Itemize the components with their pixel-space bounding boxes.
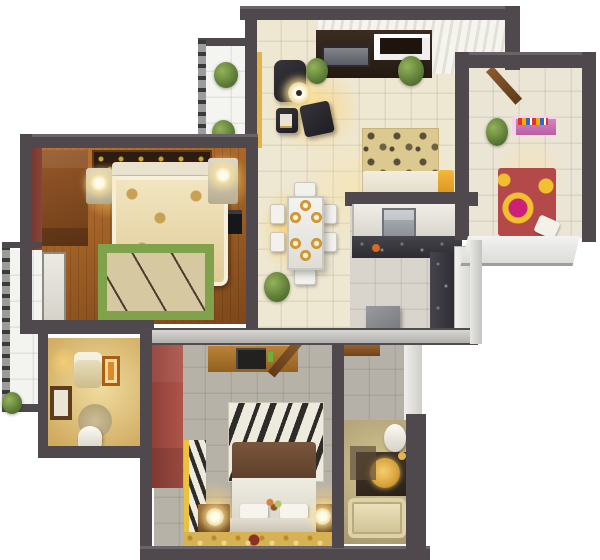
wall-bath1-bottom (38, 446, 150, 458)
bedroom2-lamp-right (314, 508, 331, 525)
bathroom2-gold-accessory (398, 452, 406, 460)
dining-chair (294, 182, 316, 197)
wall-kids-left (455, 52, 469, 240)
dining-plate (300, 250, 311, 261)
wall-bedroom2-left (140, 330, 152, 560)
wall-master-left (20, 134, 32, 330)
bathroom-orange-mirror (102, 356, 120, 386)
wall-bedroom2-bottom (140, 546, 430, 560)
bathroom2-dark-mat (350, 446, 376, 480)
bathroom2-bathtub (348, 498, 406, 538)
wall-bath2-right (406, 414, 426, 550)
balcony-top-plant-1 (214, 62, 238, 88)
dining-plate (300, 200, 311, 211)
tv-screen (322, 46, 370, 67)
wall-living-top (240, 6, 520, 20)
master-balcony-door (42, 252, 66, 322)
wall-master-top (20, 134, 258, 148)
magazine (280, 114, 292, 126)
master-wardrobe (42, 150, 88, 246)
bookshelf-books (518, 118, 548, 125)
dining-plate (311, 238, 322, 249)
wall-kids-top (455, 52, 596, 68)
bedroom2-lamp-left (206, 508, 224, 526)
bedroom2-tv (236, 348, 266, 369)
floor-plan-canvas (0, 0, 600, 560)
dining-chair (322, 232, 337, 252)
wall-master-dining-divider (246, 146, 258, 330)
balcony-left-railing (2, 246, 10, 408)
floor-lamp-center (296, 90, 302, 96)
bathroom2-toilet (384, 424, 406, 452)
dining-chair (294, 268, 316, 285)
dining-plate (290, 238, 301, 249)
master-lamp-right (214, 166, 232, 184)
media-shelf-photos (374, 34, 430, 60)
bedroom2-red-wardrobe (150, 342, 183, 488)
balcony-left-plant (2, 392, 22, 414)
dining-chair (322, 204, 337, 224)
wall-bedroom2-right (332, 344, 344, 548)
bathroom-vanity-sink (74, 352, 102, 388)
wall-living-left (245, 18, 257, 148)
ottoman (299, 100, 335, 138)
wall-kitchen-right-light (470, 240, 482, 344)
bedroom2-pillow (280, 504, 308, 519)
hallway-wood-shelf (344, 344, 380, 356)
living-plant-floor (306, 58, 328, 84)
dining-chair (270, 204, 285, 224)
dining-plant (264, 272, 290, 302)
bathroom-toilet (78, 426, 102, 448)
living-plant-shelf (398, 56, 424, 86)
bedroom2-console-green-item (268, 352, 273, 362)
dining-chair (270, 232, 285, 252)
master-green-rug (98, 244, 214, 320)
master-wall-tv (228, 210, 242, 234)
dining-plate (290, 212, 301, 223)
bedroom2-bed-blanket (232, 442, 316, 480)
bedroom2-flowers (264, 496, 284, 512)
hallway-right-wall-white (404, 344, 422, 420)
wall-kids-right (582, 52, 596, 242)
kitchen-counter-vertical (430, 252, 456, 334)
kettle-orange (372, 244, 380, 252)
master-lamp-left (90, 174, 108, 192)
kids-room-plant (486, 118, 508, 146)
wall-bath1-left (38, 332, 48, 456)
wall-mid-horizontal (142, 328, 478, 345)
bathroom-window-frame (50, 386, 72, 420)
dining-plate (311, 212, 322, 223)
